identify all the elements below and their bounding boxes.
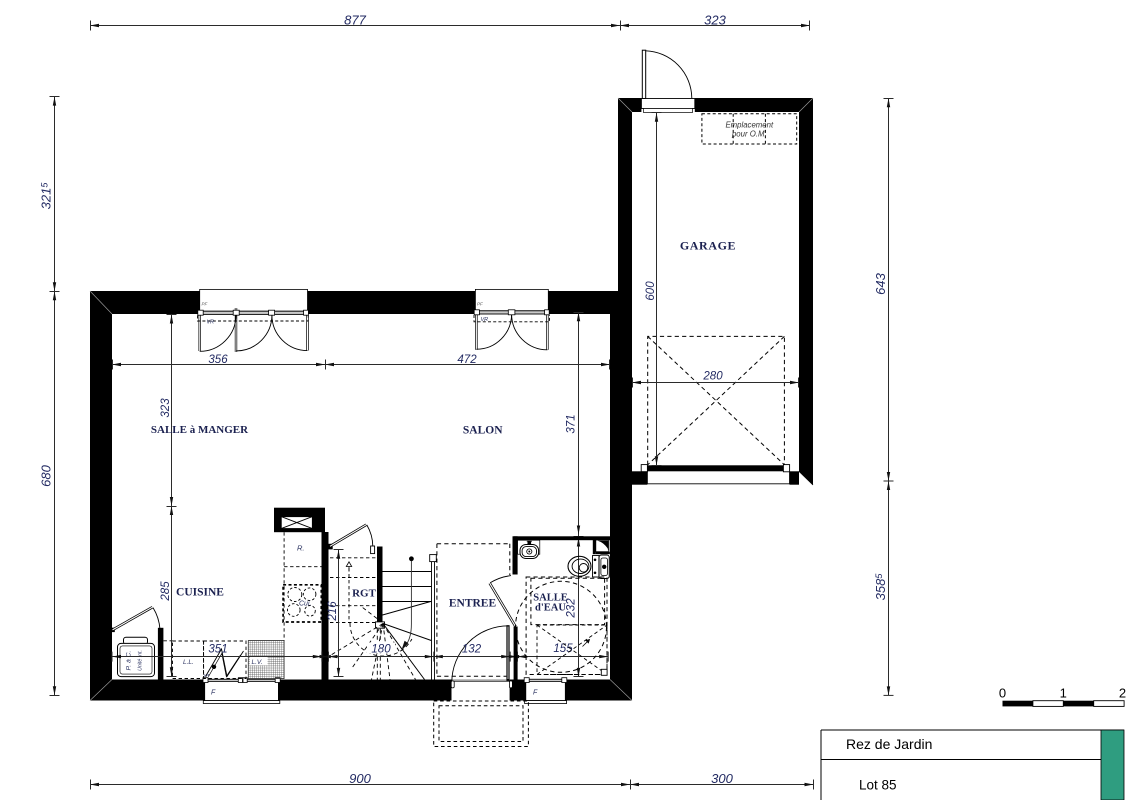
svg-text:216: 216 (327, 601, 339, 622)
svg-text:PF: PF (202, 302, 208, 307)
svg-text:SALLE à MANGER: SALLE à MANGER (151, 424, 249, 436)
svg-text:R.: R. (297, 544, 305, 553)
svg-text:VR: VR (207, 320, 215, 326)
svg-text:Emplacement: Emplacement (725, 120, 774, 129)
svg-text:356: 356 (208, 354, 228, 366)
svg-text:280: 280 (702, 371, 723, 383)
svg-text:VR: VR (481, 317, 489, 323)
svg-text:285: 285 (160, 581, 172, 602)
svg-text:RGT: RGT (352, 588, 377, 600)
svg-text:F: F (211, 690, 216, 697)
svg-text:2: 2 (1119, 686, 1126, 701)
svg-text:1: 1 (1060, 686, 1067, 701)
svg-text:680: 680 (39, 464, 54, 486)
svg-text:Lot 85: Lot 85 (859, 778, 897, 793)
svg-text:SALON: SALON (463, 425, 503, 437)
svg-text:180: 180 (371, 644, 391, 656)
svg-text:643: 643 (873, 272, 888, 294)
svg-text:GARAGE: GARAGE (680, 239, 736, 253)
svg-text:323: 323 (160, 398, 172, 418)
svg-text:d'EAU: d'EAU (535, 603, 566, 614)
svg-text:132: 132 (462, 644, 482, 656)
svg-text:PF: PF (477, 302, 483, 307)
svg-text:877: 877 (344, 12, 366, 27)
svg-text:300: 300 (711, 771, 733, 786)
svg-text:Unité Int.: Unité Int. (138, 650, 144, 671)
svg-text:ENTREE: ENTREE (449, 598, 497, 610)
svg-text:L.V.: L.V. (252, 659, 263, 666)
svg-text:900: 900 (349, 771, 371, 786)
svg-text:pour O.M.: pour O.M. (731, 130, 767, 139)
svg-text:Rez de Jardin: Rez de Jardin (846, 736, 932, 752)
svg-text:Cui.: Cui. (299, 601, 312, 608)
svg-text:VR: VR (204, 673, 210, 678)
svg-text:0: 0 (999, 686, 1006, 701)
svg-text:323: 323 (704, 12, 726, 27)
svg-text:371: 371 (566, 414, 578, 433)
svg-text:600: 600 (645, 281, 657, 301)
svg-text:472: 472 (457, 354, 477, 366)
svg-text:L.L.: L.L. (183, 659, 194, 666)
svg-text:P. à C.: P. à C. (126, 650, 133, 670)
svg-text:CUISINE: CUISINE (176, 587, 224, 599)
svg-text:F: F (533, 690, 538, 697)
svg-text:351: 351 (208, 644, 227, 656)
